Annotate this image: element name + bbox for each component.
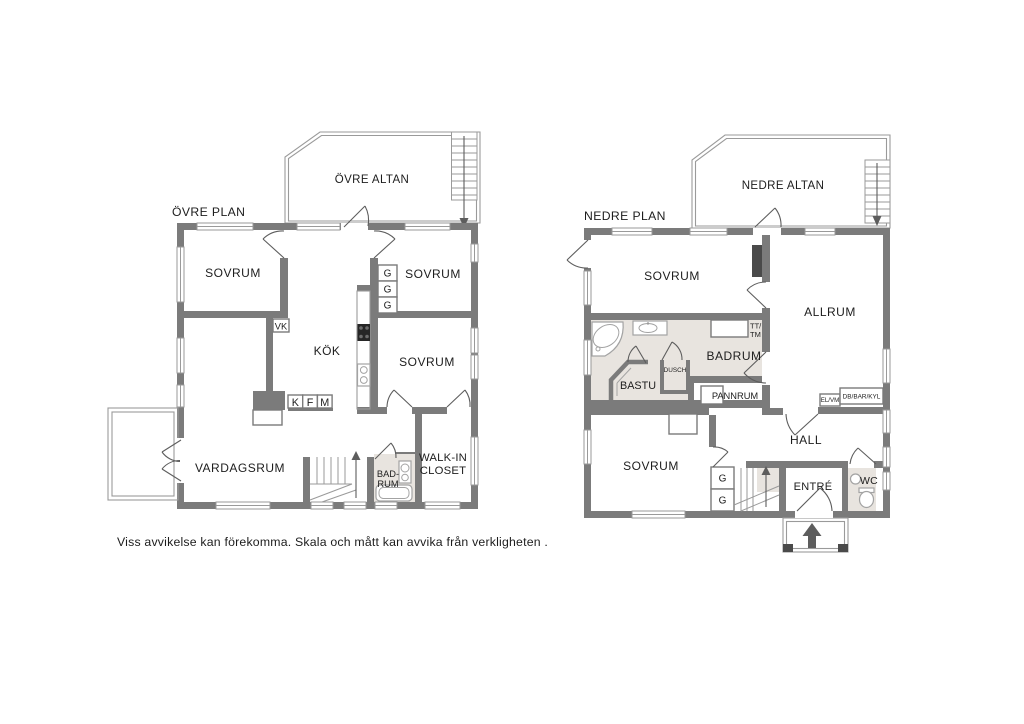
room-label-pannrum: PANNRUM [712, 391, 758, 401]
room-label-bedroom-e: SOVRUM [399, 355, 455, 369]
wardrobe-g2-label: G [384, 285, 392, 296]
room-label-hall: HALL [790, 433, 822, 447]
room-label-living-room: VARDAGSRUM [195, 461, 285, 475]
vk-closet: VK [273, 319, 289, 332]
room-label-bastu: BASTU [620, 380, 656, 392]
k-label: K [292, 397, 300, 409]
room-label-bathroom-line2: RUM [377, 479, 398, 489]
room-label-wc: WC [860, 475, 878, 487]
el-vm-label: EL/VM [821, 397, 840, 404]
balcony-stairs-upper [452, 132, 478, 228]
hall-wardrobes: G G [711, 467, 734, 511]
kfm-appliance-boxes: K F M [288, 395, 332, 409]
room-label-bedroom-n: SOVRUM [644, 269, 700, 283]
room-label-bathroom-line1: BAD- [377, 469, 399, 479]
upper-floor-plan: VK G G G K F M [108, 132, 480, 509]
m-label: M [320, 397, 329, 409]
washbasin-icon [399, 461, 411, 483]
room-label-wic-line2: CLOSET [420, 465, 466, 477]
room-label-badrum: BADRUM [706, 349, 761, 363]
floor-plan-page: VK G G G K F M [0, 0, 1024, 724]
balcony-stairs-lower [865, 160, 890, 226]
kitchen-sink-icon [358, 364, 371, 386]
vk-label: VK [275, 322, 288, 332]
side-deck [108, 408, 178, 500]
plan-title-upper: ÖVRE PLAN [172, 205, 245, 219]
wardrobe-g3-label: G [384, 301, 392, 312]
wardrobe-g2-label: G [719, 496, 727, 507]
room-label-dusch: DUSCH [664, 367, 687, 374]
plan-title-lower: NEDRE PLAN [584, 209, 666, 223]
toilet-icon [859, 488, 874, 508]
wardrobe-g1-label: G [719, 474, 727, 485]
room-label-lower-balcony: NEDRE ALTAN [742, 180, 825, 192]
room-label-upper-balcony: ÖVRE ALTAN [335, 174, 410, 186]
chimney-lower [669, 414, 697, 434]
stove-icon [358, 324, 371, 341]
floor-plan-canvas: VK G G G K F M [0, 0, 1024, 724]
entry-direction-arrow-icon [803, 523, 822, 548]
wardrobe-column: G G G [378, 265, 397, 313]
f-label: F [307, 397, 314, 409]
room-label-bedroom-ne: SOVRUM [405, 267, 461, 281]
room-label-wic-line1: WALK-IN [419, 452, 467, 464]
room-label-bedroom-s: SOVRUM [623, 459, 679, 473]
bathroom-sink-icon [633, 321, 667, 335]
room-label-allrum: ALLRUM [804, 305, 856, 319]
washer-dryer-box [711, 320, 748, 337]
entry-porch [783, 518, 848, 552]
wardrobe-g1-label: G [384, 269, 392, 280]
washer-label-line2: TM [750, 330, 761, 339]
db-bar-kyl-label: DB/BAR/KYL [843, 394, 881, 401]
fireplace-chimney [253, 391, 285, 425]
room-label-kitchen: KÖK [314, 344, 341, 358]
room-label-bedroom-nw: SOVRUM [205, 266, 261, 280]
lower-floor-plan: G G [567, 135, 890, 552]
disclaimer-text: Viss avvikelse kan förekomma. Skala och … [117, 535, 548, 549]
room-label-entre: ENTRÉ [794, 480, 833, 493]
